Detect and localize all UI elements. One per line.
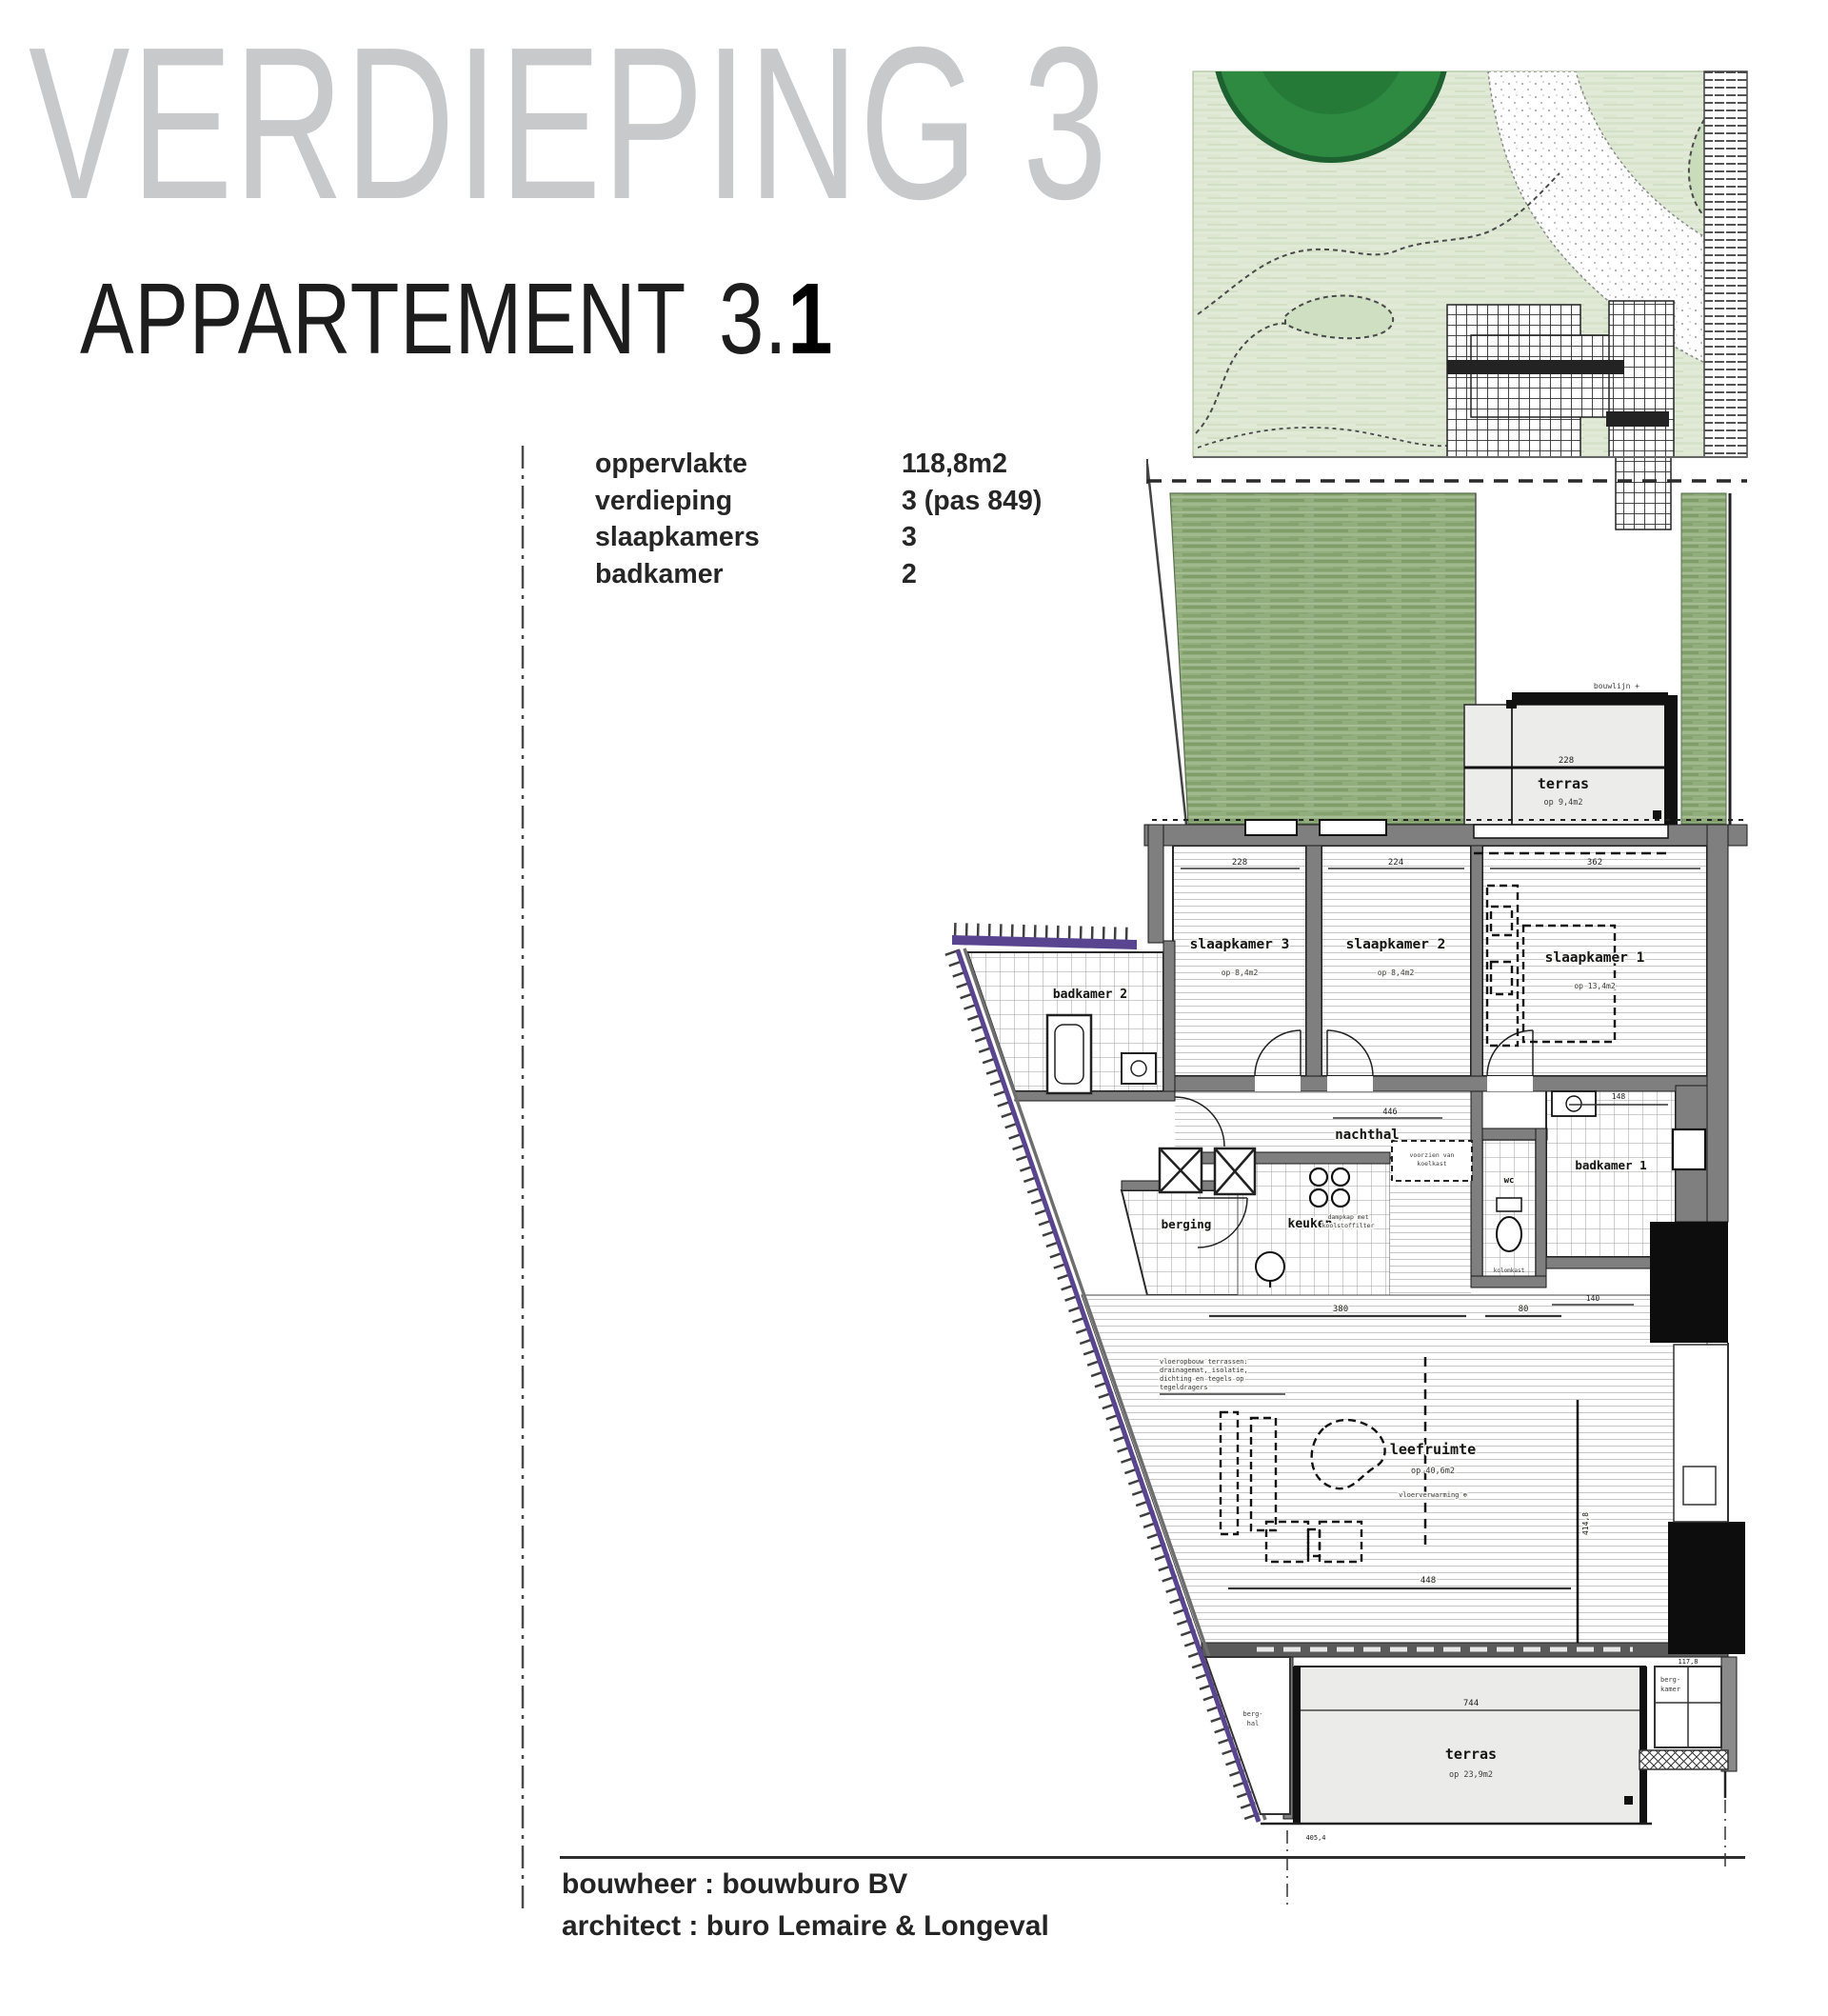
floor-plan: bouwlijn + 228 terras op 9,4m2 228 224 3…: [0, 0, 1828, 2016]
label-berghal-1: berg-: [1242, 1710, 1262, 1718]
label-bergkamer-1: berg-: [1660, 1676, 1680, 1684]
dim-badkamer1-onder: 140: [1586, 1294, 1600, 1303]
area-leefruimte: op 40,6m2: [1411, 1467, 1455, 1476]
dim-terras-lower: 744: [1463, 1699, 1479, 1708]
dim-leefruimte-hoogte: 414,8: [1581, 1512, 1590, 1535]
label-berging: berging: [1162, 1217, 1212, 1231]
toilet-icon: [1497, 1217, 1521, 1251]
note-koelkast-2: koelkast: [1417, 1160, 1446, 1168]
note-dampkap-2: koolstoffilter: [1322, 1222, 1375, 1229]
sink-icon: [1256, 1252, 1284, 1281]
note-vloer-1: vloeropbouw terrassen:: [1160, 1358, 1248, 1366]
room-slaapkamer2: [1321, 846, 1471, 1076]
dim-slaapkamer1: 362: [1587, 858, 1602, 868]
area-terras-lower: op 23,9m2: [1449, 1770, 1493, 1780]
room-leefruimte: [1082, 1295, 1707, 1643]
area-slaapkamer3: op 8,4m2: [1222, 968, 1259, 977]
label-nachthal: nachthal: [1335, 1128, 1399, 1143]
dim-nachthal: 446: [1382, 1108, 1397, 1117]
dim-badkamer1: 148: [1612, 1092, 1626, 1101]
note-kolomkast: kolomkast: [1494, 1267, 1525, 1274]
note-dampkap-1: dampkap met: [1327, 1213, 1368, 1221]
dim-leefruimte-2: 80: [1519, 1305, 1529, 1314]
area-slaapkamer1: op 13,4m2: [1574, 982, 1616, 990]
label-leefruimte: leefruimte: [1390, 1441, 1476, 1458]
label-berghal-2: hal: [1247, 1720, 1260, 1727]
label-slaapkamer3: slaapkamer 3: [1190, 937, 1290, 952]
dim-slaapkamer3: 228: [1232, 858, 1247, 868]
area-slaapkamer2: op 8,4m2: [1378, 968, 1415, 977]
dim-leefruimte: 380: [1333, 1305, 1348, 1314]
note-leefruimte: vloerverwarming ⊕: [1399, 1491, 1467, 1499]
note-koelkast-1: voorzien van: [1410, 1151, 1455, 1159]
label-terras-upper: terras: [1538, 775, 1589, 792]
label-badkamer1: badkamer 1: [1575, 1158, 1646, 1172]
label-bergkamer-2: kamer: [1660, 1686, 1680, 1693]
retaining-wall-hatch: [1704, 71, 1747, 457]
label-badkamer2: badkamer 2: [1053, 988, 1127, 1002]
dim-terras-upper: 228: [1559, 756, 1574, 766]
terras-lower-block: [1205, 1657, 1728, 1909]
label-slaapkamer1: slaapkamer 1: [1545, 950, 1645, 966]
bouwlijn-note: bouwlijn +: [1594, 682, 1639, 690]
note-vloer-3: dichting en tegels op: [1160, 1375, 1244, 1383]
dim-bergkamer: 117,8: [1678, 1658, 1698, 1666]
dim-site: 405,4: [1305, 1834, 1325, 1842]
label-terras-lower: terras: [1445, 1746, 1497, 1763]
note-vloer-2: drainagemat, isolatie,: [1160, 1367, 1248, 1374]
dim-slaapkamer2: 224: [1388, 858, 1403, 868]
room-berging: [1122, 1190, 1247, 1295]
area-terras-upper: op 9,4m2: [1544, 798, 1583, 808]
dim-leefruimte-lengte: 448: [1421, 1576, 1436, 1586]
room-slaapkamer3: [1173, 846, 1306, 1076]
label-slaapkamer2: slaapkamer 2: [1346, 937, 1446, 952]
garden-plan: [1193, 0, 1747, 529]
note-vloer-4: tegeldragers: [1160, 1384, 1208, 1391]
label-wc: wc: [1504, 1176, 1515, 1186]
